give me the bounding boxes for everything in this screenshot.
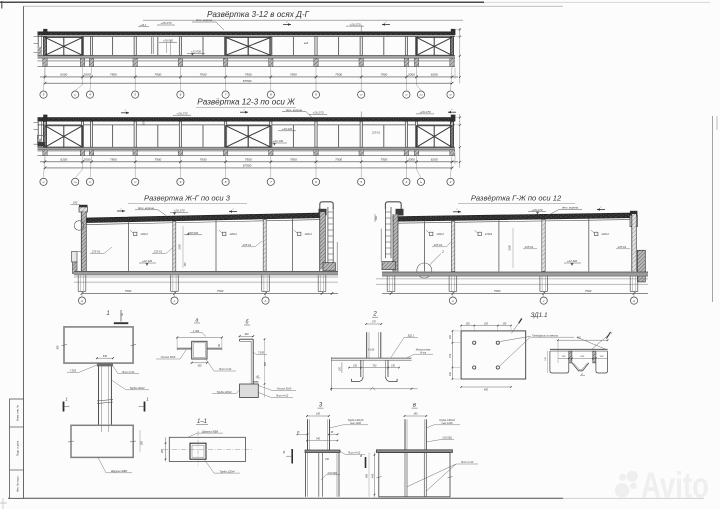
svg-text:Развёртка 3-12 в осях Д-Г: Развёртка 3-12 в осях Д-Г (207, 10, 310, 19)
svg-text:170: 170 (372, 321, 377, 324)
svg-text:400: 400 (484, 388, 489, 391)
svg-text:3100: 3100 (509, 245, 512, 251)
svg-text:67500: 67500 (243, 79, 252, 83)
svg-text:1: 1 (65, 397, 67, 402)
svg-text:Г.305: Г.305 (258, 351, 265, 355)
svg-text:Взам. инв. №: Взам. инв. № (16, 405, 20, 421)
svg-text:2000: 2000 (83, 158, 91, 162)
svg-text:Г.305: Г.305 (70, 369, 77, 373)
svg-text:120х4: 120х4 (485, 232, 493, 236)
svg-text:225 К1: 225 К1 (91, 250, 101, 254)
svg-text:300: 300 (57, 345, 60, 350)
svg-text:3100: 3100 (179, 244, 182, 250)
svg-text:440: 440 (371, 473, 374, 478)
svg-text:2000: 2000 (83, 73, 91, 77)
svg-text:Avito: Avito (641, 465, 709, 506)
svg-text:Лист t=12: Лист t=12 (121, 370, 135, 374)
svg-text:+22.320: +22.320 (142, 259, 153, 263)
svg-text:ЗД1.1: ЗД1.1 (408, 334, 415, 338)
svg-text:4.100: 4.100 (368, 349, 375, 352)
svg-text:Труба 120х4: Труба 120х4 (217, 390, 232, 394)
svg-text:2х10 ВД: 2х10 ВД (441, 437, 451, 440)
svg-text:1.300: 1.300 (193, 330, 200, 333)
svg-text:шаг 1200: шаг 1200 (442, 422, 454, 425)
svg-text:2: 2 (441, 250, 444, 254)
svg-text:+22.830: +22.830 (191, 50, 202, 54)
svg-text:120х4: 120х4 (140, 232, 148, 236)
svg-text:Труба 120х4: Труба 120х4 (220, 469, 235, 473)
svg-text:Лист t=12: Лист t=12 (275, 394, 289, 398)
svg-text:Шурупы ЖБИ: Шурупы ЖБИ (202, 429, 218, 433)
svg-text:Уголок 50х5: Уголок 50х5 (277, 387, 292, 391)
svg-text:340: 340 (316, 437, 321, 440)
svg-text:ЗД1.1: ЗД1.1 (530, 312, 548, 319)
svg-text:Уголок 50х5: Уголок 50х5 (161, 355, 176, 359)
svg-text:Лист t=12: Лист t=12 (218, 367, 232, 371)
svg-text:11: 11 (405, 95, 407, 97)
svg-text:7500: 7500 (380, 158, 387, 162)
svg-text:100: 100 (449, 334, 452, 339)
svg-text:Труба 120х4: Труба 120х4 (130, 386, 145, 390)
svg-text:+26.520: +26.520 (163, 39, 174, 43)
svg-text:7500: 7500 (585, 289, 592, 293)
svg-text:200: 200 (141, 440, 144, 446)
svg-text:Развертка Ж-Г по оси 3: Развертка Ж-Г по оси 3 (144, 194, 231, 203)
svg-text:600: 600 (375, 215, 378, 220)
svg-text:120х4: 120х4 (229, 232, 237, 236)
svg-text:+26.270: +26.270 (532, 208, 543, 212)
svg-text:Ж-та: Ж-та (419, 351, 427, 354)
svg-text:Лист t=12: Лист t=12 (460, 460, 474, 464)
svg-text:200: 200 (579, 356, 584, 358)
svg-text:в: в (413, 403, 416, 409)
svg-text:+22.320: +22.320 (567, 259, 578, 263)
svg-text:+26.270: +26.270 (350, 22, 361, 26)
svg-text:7500: 7500 (110, 73, 117, 77)
svg-text:2х10 ВД: 2х10 ВД (326, 472, 336, 475)
svg-text:1–1: 1–1 (197, 419, 207, 425)
svg-text:7500: 7500 (154, 158, 161, 162)
svg-text:7500: 7500 (125, 289, 132, 293)
svg-text:2000: 2000 (407, 73, 415, 77)
svg-text:Подп. и дата: Подп. и дата (16, 440, 20, 456)
svg-text:180: 180 (73, 201, 78, 205)
svg-text:400: 400 (244, 333, 249, 336)
svg-text:150: 150 (449, 353, 452, 358)
svg-text:7500: 7500 (245, 158, 252, 162)
svg-text:7500: 7500 (245, 73, 252, 77)
svg-text:120х4: 120х4 (304, 232, 312, 236)
svg-text:225 К1: 225 К1 (153, 250, 163, 254)
svg-text:67500: 67500 (243, 164, 252, 168)
svg-text:225 К1: 225 К1 (433, 243, 443, 247)
svg-text:1: 1 (146, 397, 148, 402)
svg-text:Развёртка Г-Ж по оси 12: Развёртка Г-Ж по оси 12 (471, 194, 562, 203)
svg-text:дет. ворона: дет. ворона (138, 206, 155, 210)
svg-text:120х4: 120х4 (436, 232, 444, 236)
svg-text:дет. ворона: дет. ворона (562, 206, 579, 210)
svg-text:2000: 2000 (407, 158, 415, 162)
svg-text:7500: 7500 (494, 289, 501, 293)
svg-text:3000: 3000 (144, 120, 146, 126)
svg-text:225 К1: 225 К1 (242, 243, 252, 247)
svg-text:100: 100 (466, 322, 471, 325)
svg-text:180: 180 (413, 413, 418, 416)
svg-text:+22.130: +22.130 (273, 139, 284, 143)
svg-text:2: 2 (372, 312, 377, 318)
svg-text:+26.270: +26.270 (161, 21, 172, 25)
svg-text:+26.520: +26.520 (188, 231, 199, 235)
svg-text:1: 1 (106, 311, 109, 317)
svg-text:7500: 7500 (154, 73, 161, 77)
svg-text:7500: 7500 (290, 73, 297, 77)
svg-text:6200: 6200 (60, 73, 67, 77)
svg-text:в: в (360, 453, 362, 458)
svg-text:шаг 1200: шаг 1200 (350, 422, 362, 425)
svg-text:100: 100 (449, 371, 452, 376)
svg-text:225 К1: 225 К1 (617, 245, 627, 249)
svg-text:Лист t=12: Лист t=12 (347, 451, 361, 455)
svg-text:+26.270: +26.270 (174, 209, 185, 213)
svg-text:Шурупы ЖБИ: Шурупы ЖБИ (111, 469, 127, 473)
svg-text:6200: 6200 (431, 73, 438, 77)
svg-text:100: 100 (502, 322, 507, 325)
svg-text:225 К1: 225 К1 (371, 131, 381, 135)
svg-text:500: 500 (264, 361, 267, 366)
svg-text:225 К1: 225 К1 (524, 245, 534, 249)
svg-text:180: 180 (316, 413, 321, 416)
svg-text:дет. ворона: дет. ворона (196, 18, 213, 22)
svg-text:+26.270: +26.270 (313, 111, 324, 115)
svg-text:11: 11 (89, 182, 91, 184)
svg-text:400: 400 (577, 337, 582, 340)
svg-text:дет. ворона: дет. ворона (286, 108, 303, 112)
svg-text:+26.270: +26.270 (177, 111, 188, 115)
svg-text:7500: 7500 (290, 158, 297, 162)
svg-text:7500: 7500 (335, 158, 342, 162)
svg-text:6200: 6200 (431, 158, 438, 162)
svg-text:7500: 7500 (217, 289, 224, 293)
svg-text:200: 200 (161, 448, 164, 454)
svg-text:ав5: ав5 (304, 41, 309, 45)
svg-text:7500: 7500 (200, 73, 207, 77)
svg-text:+26.420: +26.420 (282, 127, 293, 131)
svg-text:120х4: 120х4 (601, 232, 609, 236)
svg-text:7500: 7500 (335, 73, 342, 77)
svg-text:Тандофиль по месту: Тандофиль по месту (532, 333, 559, 337)
svg-text:6200: 6200 (60, 158, 67, 162)
svg-text:Инв. № подл.: Инв. № подл. (16, 476, 20, 492)
svg-text:300: 300 (197, 365, 202, 368)
svg-text:630: 630 (103, 355, 108, 358)
svg-text:7500: 7500 (380, 73, 387, 77)
svg-text:+26.270: +26.270 (420, 110, 431, 114)
svg-text:7500: 7500 (110, 158, 117, 162)
svg-text:465: 465 (366, 473, 369, 478)
svg-text:а: а (196, 318, 199, 324)
svg-text:200: 200 (483, 322, 489, 325)
svg-text:7500: 7500 (200, 158, 207, 162)
svg-text:Развёртка 12-3 по оси Ж: Развёртка 12-3 по оси Ж (197, 98, 295, 107)
